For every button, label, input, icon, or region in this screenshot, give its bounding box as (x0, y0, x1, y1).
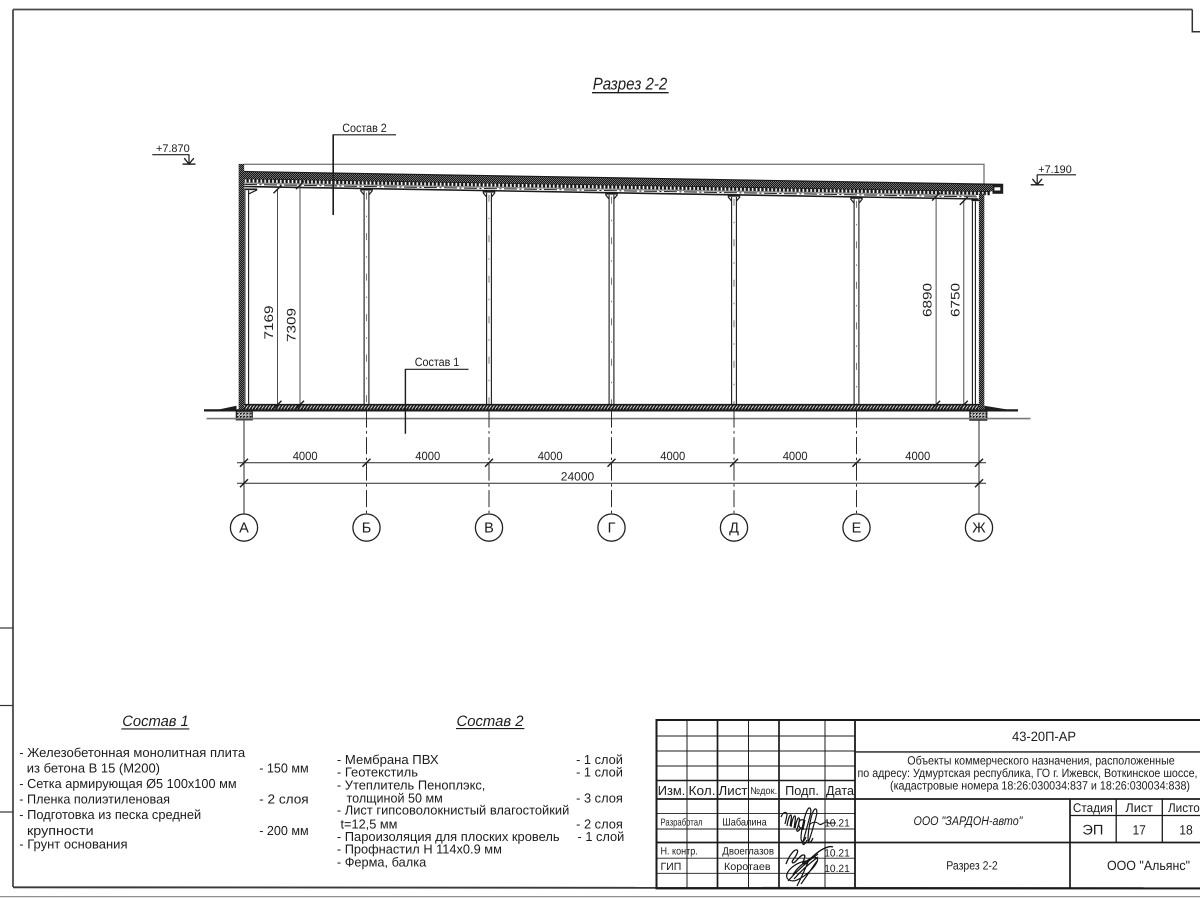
svg-text:- 3 слоя: - 3 слоя (576, 791, 623, 806)
svg-text:Ж: Ж (972, 521, 986, 537)
svg-text:Г: Г (608, 521, 616, 537)
svg-text:7309: 7309 (285, 308, 299, 342)
svg-text:10.21: 10.21 (824, 848, 850, 860)
svg-text:А: А (239, 521, 249, 537)
svg-text:В: В (484, 521, 494, 537)
svg-text:4000: 4000 (415, 449, 440, 463)
svg-text:4000: 4000 (905, 449, 930, 463)
svg-text:Н. контр.: Н. контр. (661, 846, 698, 858)
svg-text:- Грунт основания: - Грунт основания (19, 836, 127, 851)
svg-text:- 1 слой: - 1 слой (576, 765, 623, 780)
svg-text:Разрез 2-2: Разрез 2-2 (946, 858, 998, 872)
svg-text:(кадастровые номера 18:26:0300: (кадастровые номера 18:26:030034:837 и 1… (890, 779, 1190, 793)
svg-text:6890: 6890 (921, 283, 935, 317)
svg-text:7169: 7169 (262, 305, 276, 339)
svg-text:- Железобетонная монолитная п: - Железобетонная монолитная плита (19, 745, 246, 760)
svg-text:ООО "Альянс": ООО "Альянс" (1107, 858, 1190, 873)
svg-text:Состав 2: Состав 2 (342, 121, 387, 135)
svg-text:- 150 мм: - 150 мм (259, 760, 309, 775)
svg-text:Состав 2: Состав 2 (457, 713, 525, 730)
svg-text:4000: 4000 (783, 449, 808, 463)
svg-text:Листов: Листов (1168, 801, 1200, 815)
svg-text:из бетона В 15 (М200): из бетона В 15 (М200) (27, 760, 160, 775)
svg-text:Изм.: Изм. (658, 783, 686, 798)
svg-text:Двоеглазов: Двоеглазов (722, 846, 774, 858)
svg-text:+7.870: +7.870 (156, 143, 190, 155)
svg-text:Подп.: Подп. (785, 783, 819, 798)
svg-text:- Сетка армирующая Ø5 100х100: - Сетка армирующая Ø5 100х100 мм (19, 776, 236, 791)
svg-text:- Лист гипсоволокнистый влагос: - Лист гипсоволокнистый влагостойкий (337, 803, 569, 818)
svg-text:- 2 слоя: - 2 слоя (259, 792, 309, 807)
svg-text:ЭП: ЭП (1082, 821, 1103, 837)
svg-text:№док.: №док. (750, 786, 777, 797)
svg-text:+7.190: +7.190 (1038, 164, 1072, 176)
svg-text:18: 18 (1179, 822, 1193, 837)
svg-text:- Подготовка из песка средней: - Подготовка из песка средней (19, 807, 201, 822)
svg-text:24000: 24000 (561, 469, 595, 483)
svg-text:10.21: 10.21 (824, 863, 850, 875)
svg-text:Д: Д (729, 521, 739, 537)
svg-text:- Пленка полиэтиленовая: - Пленка полиэтиленовая (19, 792, 170, 807)
svg-text:- Ферма, балка: - Ферма, балка (337, 854, 427, 869)
svg-text:Б: Б (362, 521, 372, 537)
svg-text:Стадия: Стадия (1073, 801, 1113, 815)
svg-text:Разработал: Разработал (661, 817, 703, 828)
svg-text:Шабалина: Шабалина (722, 816, 767, 828)
svg-text:4000: 4000 (538, 449, 563, 463)
svg-text:Дата: Дата (826, 783, 855, 798)
svg-text:Разрез 2-2: Разрез 2-2 (593, 75, 668, 94)
svg-text:6750: 6750 (948, 283, 962, 317)
svg-text:Е: Е (852, 521, 862, 537)
svg-text:17: 17 (1132, 822, 1146, 837)
svg-text:- 1 слой: - 1 слой (578, 829, 625, 844)
svg-text:Коротаев: Коротаев (724, 861, 771, 873)
svg-text:ООО "ЗАРДОН-авто": ООО "ЗАРДОН-авто" (914, 814, 1023, 828)
svg-text:- 200 мм: - 200 мм (259, 823, 309, 838)
svg-text:4000: 4000 (293, 449, 318, 463)
svg-text:4000: 4000 (660, 449, 685, 463)
svg-text:ГИП: ГИП (661, 861, 682, 873)
svg-text:43-20П-АР: 43-20П-АР (1012, 729, 1076, 744)
svg-text:Состав 1: Состав 1 (415, 355, 460, 369)
svg-text:Кол.: Кол. (689, 783, 716, 798)
svg-text:Состав 1: Состав 1 (122, 713, 189, 730)
svg-text:Лист: Лист (719, 783, 748, 798)
svg-text:Лист: Лист (1125, 801, 1153, 815)
